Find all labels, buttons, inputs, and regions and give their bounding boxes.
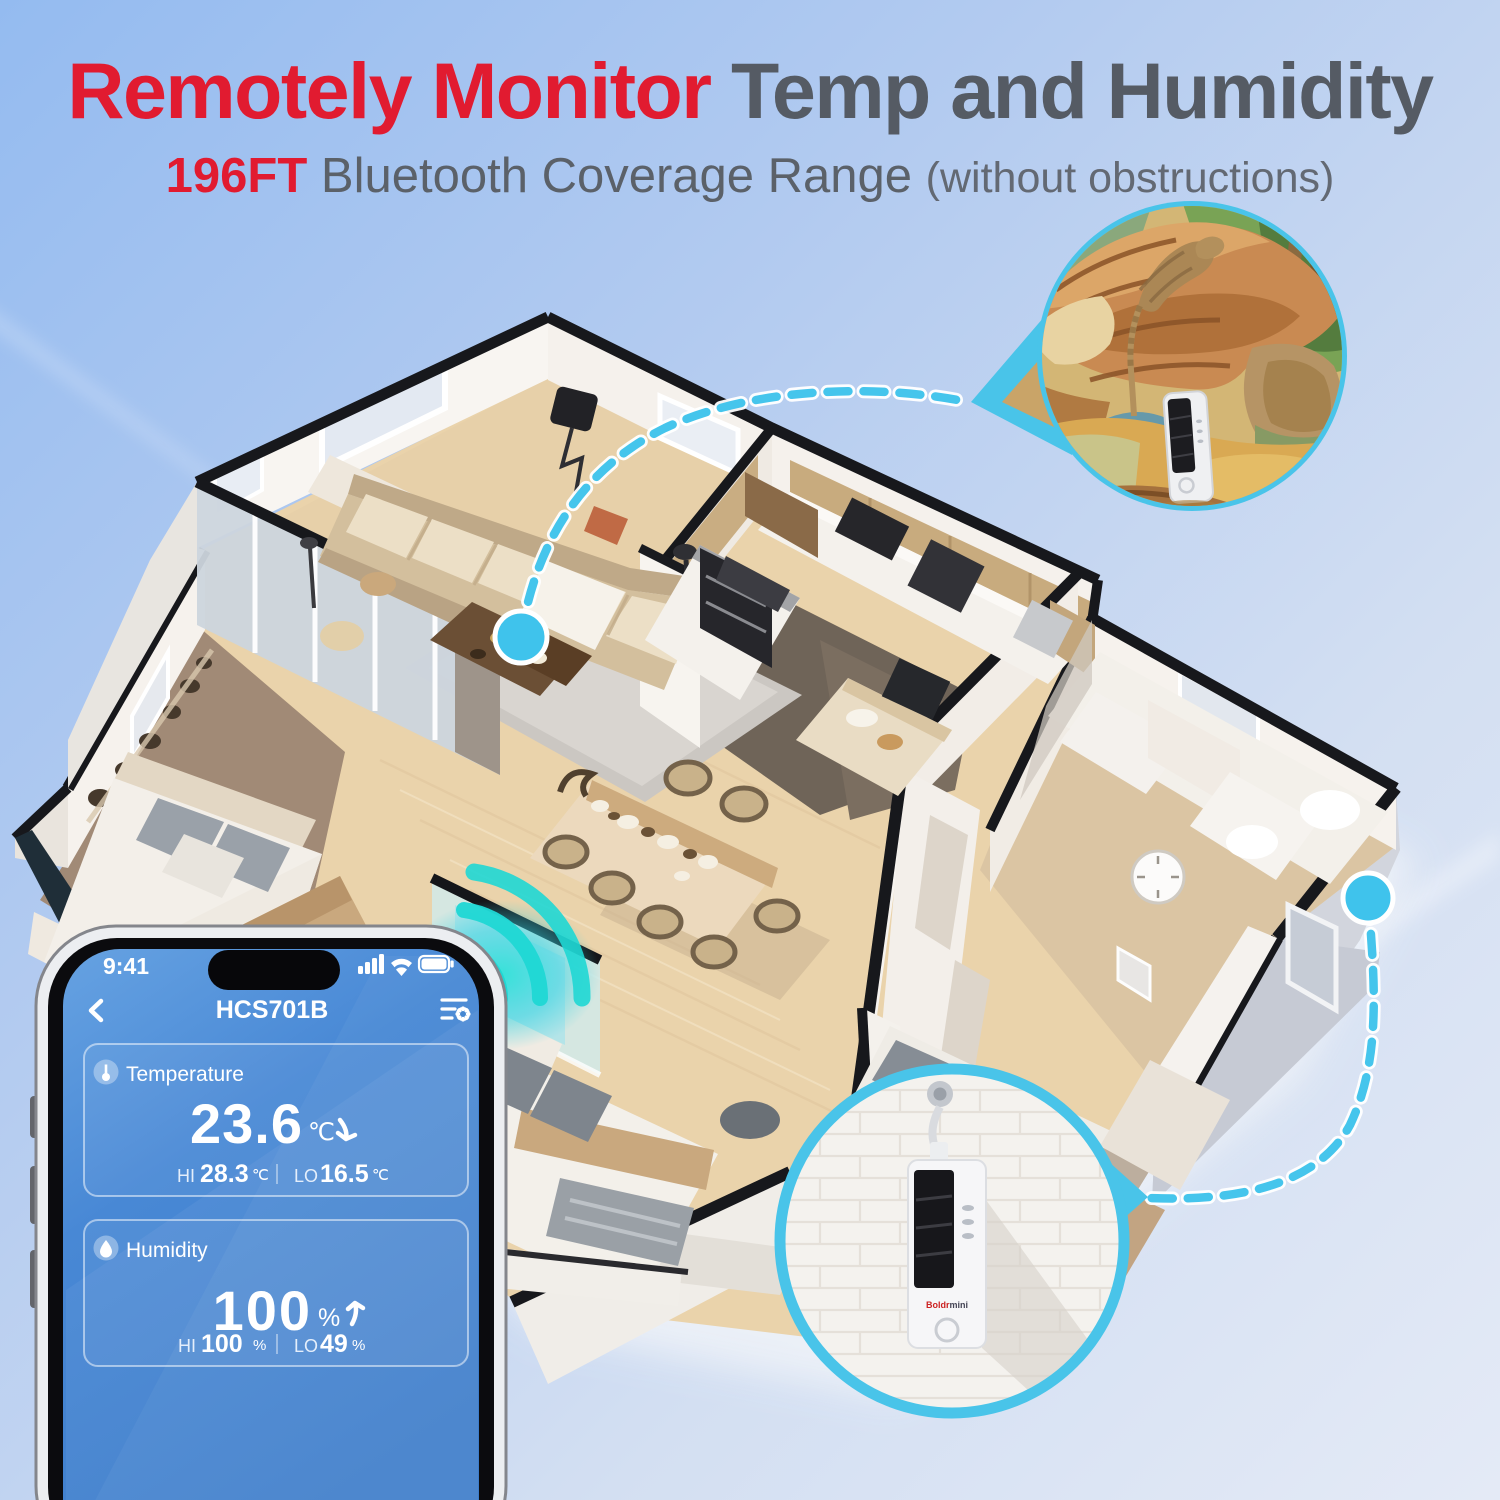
svg-text:HCS701B: HCS701B	[216, 996, 329, 1024]
svg-text:Remotely Monitor Temp and Humi: Remotely Monitor Temp and Humidity	[67, 46, 1434, 135]
svg-text:LO: LO	[294, 1336, 318, 1356]
svg-text:196FT Bluetooth Coverage Range: 196FT Bluetooth Coverage Range (without …	[166, 149, 1335, 203]
svg-text:23.6: 23.6	[190, 1092, 303, 1155]
svg-text:HI: HI	[178, 1336, 196, 1356]
svg-text:Humidity: Humidity	[126, 1239, 208, 1262]
svg-text:Temperature: Temperature	[126, 1063, 244, 1086]
svg-text:16.5: 16.5	[320, 1160, 369, 1188]
svg-text:%: %	[318, 1304, 340, 1332]
svg-text:HI: HI	[177, 1166, 195, 1186]
svg-text:LO: LO	[294, 1166, 318, 1186]
svg-text:%: %	[253, 1337, 266, 1354]
svg-text:100: 100	[201, 1330, 243, 1358]
svg-text:℃: ℃	[372, 1167, 389, 1184]
svg-text:28.3: 28.3	[200, 1160, 249, 1188]
svg-text:℃: ℃	[252, 1167, 269, 1184]
svg-text:%: %	[352, 1337, 365, 1354]
svg-text:℃: ℃	[308, 1119, 335, 1146]
svg-text:49: 49	[320, 1330, 348, 1358]
svg-text:9:41: 9:41	[103, 953, 149, 979]
svg-text:Boldrmini: Boldrmini	[926, 1300, 968, 1310]
